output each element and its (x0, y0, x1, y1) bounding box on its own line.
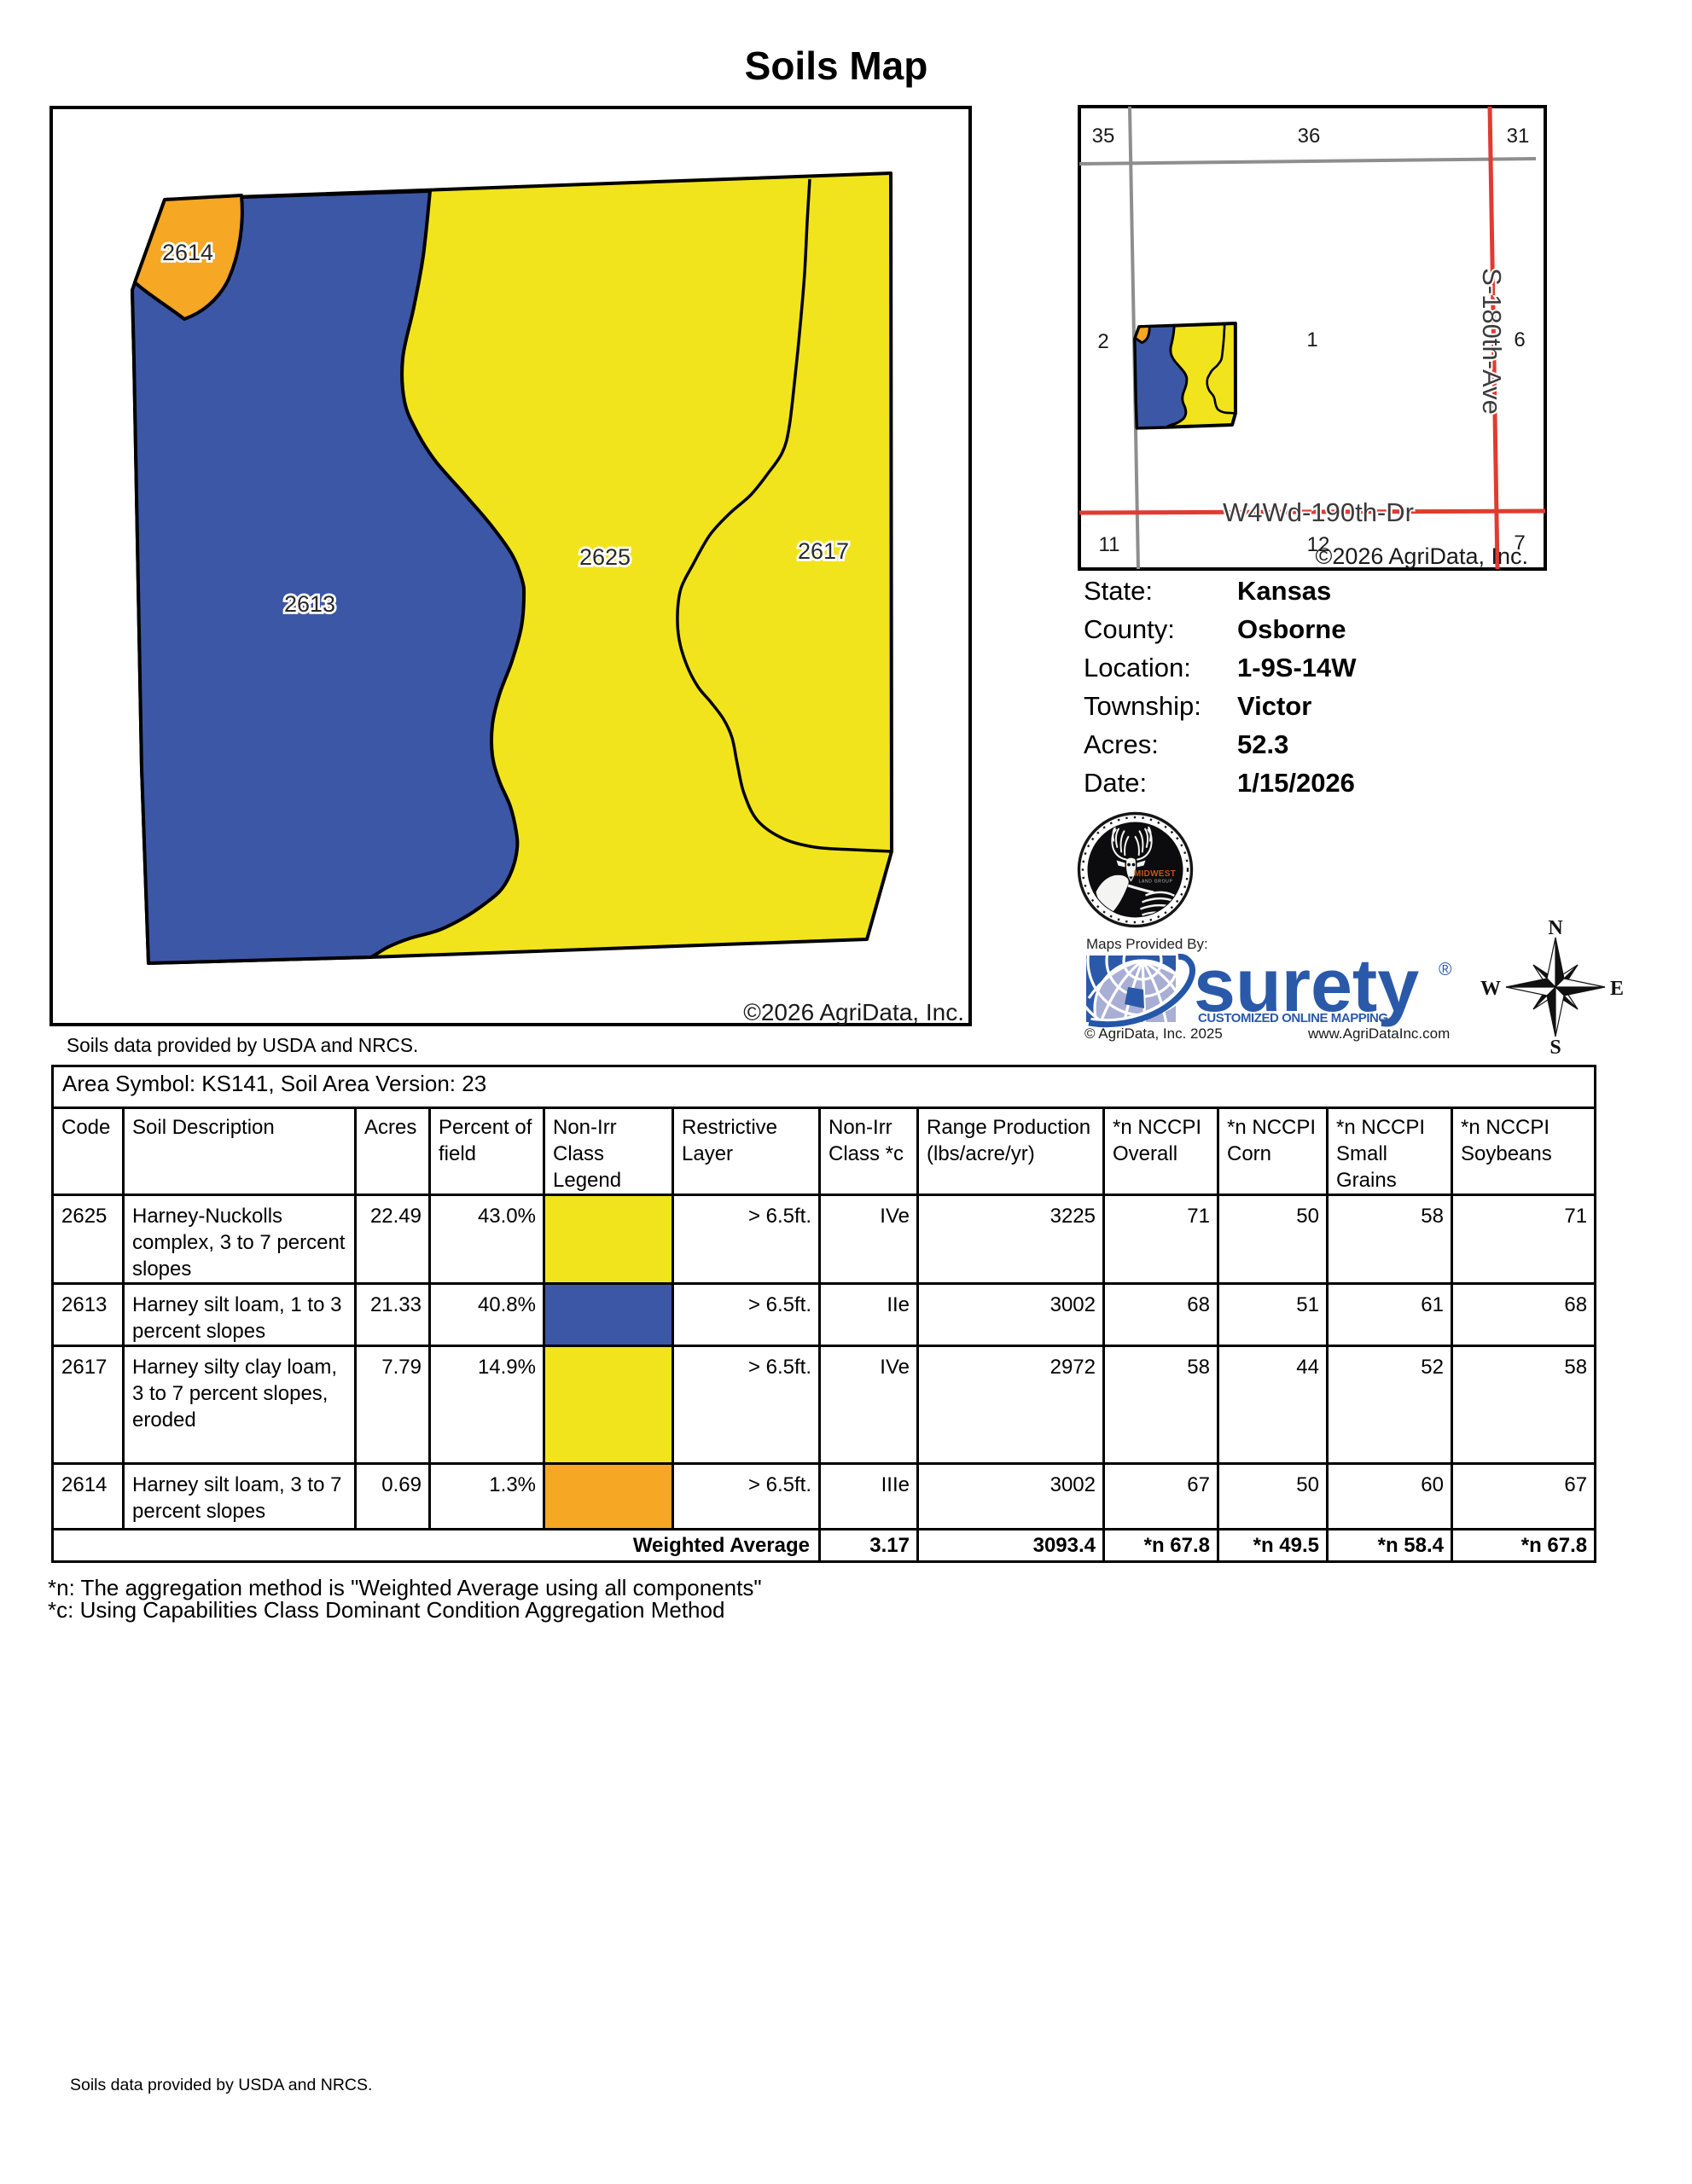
svg-text:2613: 2613 (284, 591, 335, 617)
svg-text:2625: 2625 (579, 544, 631, 570)
svg-text:2614: 2614 (162, 240, 213, 265)
svg-text:36: 36 (1298, 125, 1321, 148)
svg-text:©2026 AgriData, Inc.: ©2026 AgriData, Inc. (743, 999, 964, 1025)
svg-text:S-180th-Ave: S-180th-Ave (1477, 268, 1507, 415)
svg-text:6: 6 (1514, 328, 1525, 351)
svg-text:N: N (1548, 917, 1563, 939)
svg-text:MIDWEST: MIDWEST (1134, 869, 1176, 879)
svg-text:W4Wd-190th-Dr: W4Wd-190th-Dr (1223, 497, 1414, 527)
svg-text:®: ® (1439, 960, 1452, 979)
svg-text:W: W (1480, 978, 1501, 1000)
svg-text:S: S (1550, 1037, 1561, 1059)
svg-text:31: 31 (1507, 125, 1530, 148)
svg-text:11: 11 (1099, 533, 1120, 556)
svg-text:2617: 2617 (798, 538, 849, 564)
svg-text:CUSTOMIZED ONLINE MAPPING: CUSTOMIZED ONLINE MAPPING (1198, 1011, 1388, 1025)
svg-text:©2026 AgriData, Inc.: ©2026 AgriData, Inc. (1315, 543, 1528, 569)
svg-text:1: 1 (1306, 328, 1317, 351)
svg-text:35: 35 (1092, 125, 1115, 148)
svg-text:2: 2 (1097, 330, 1108, 353)
svg-text:E: E (1610, 978, 1624, 1000)
svg-text:LAND GROUP: LAND GROUP (1138, 880, 1172, 885)
